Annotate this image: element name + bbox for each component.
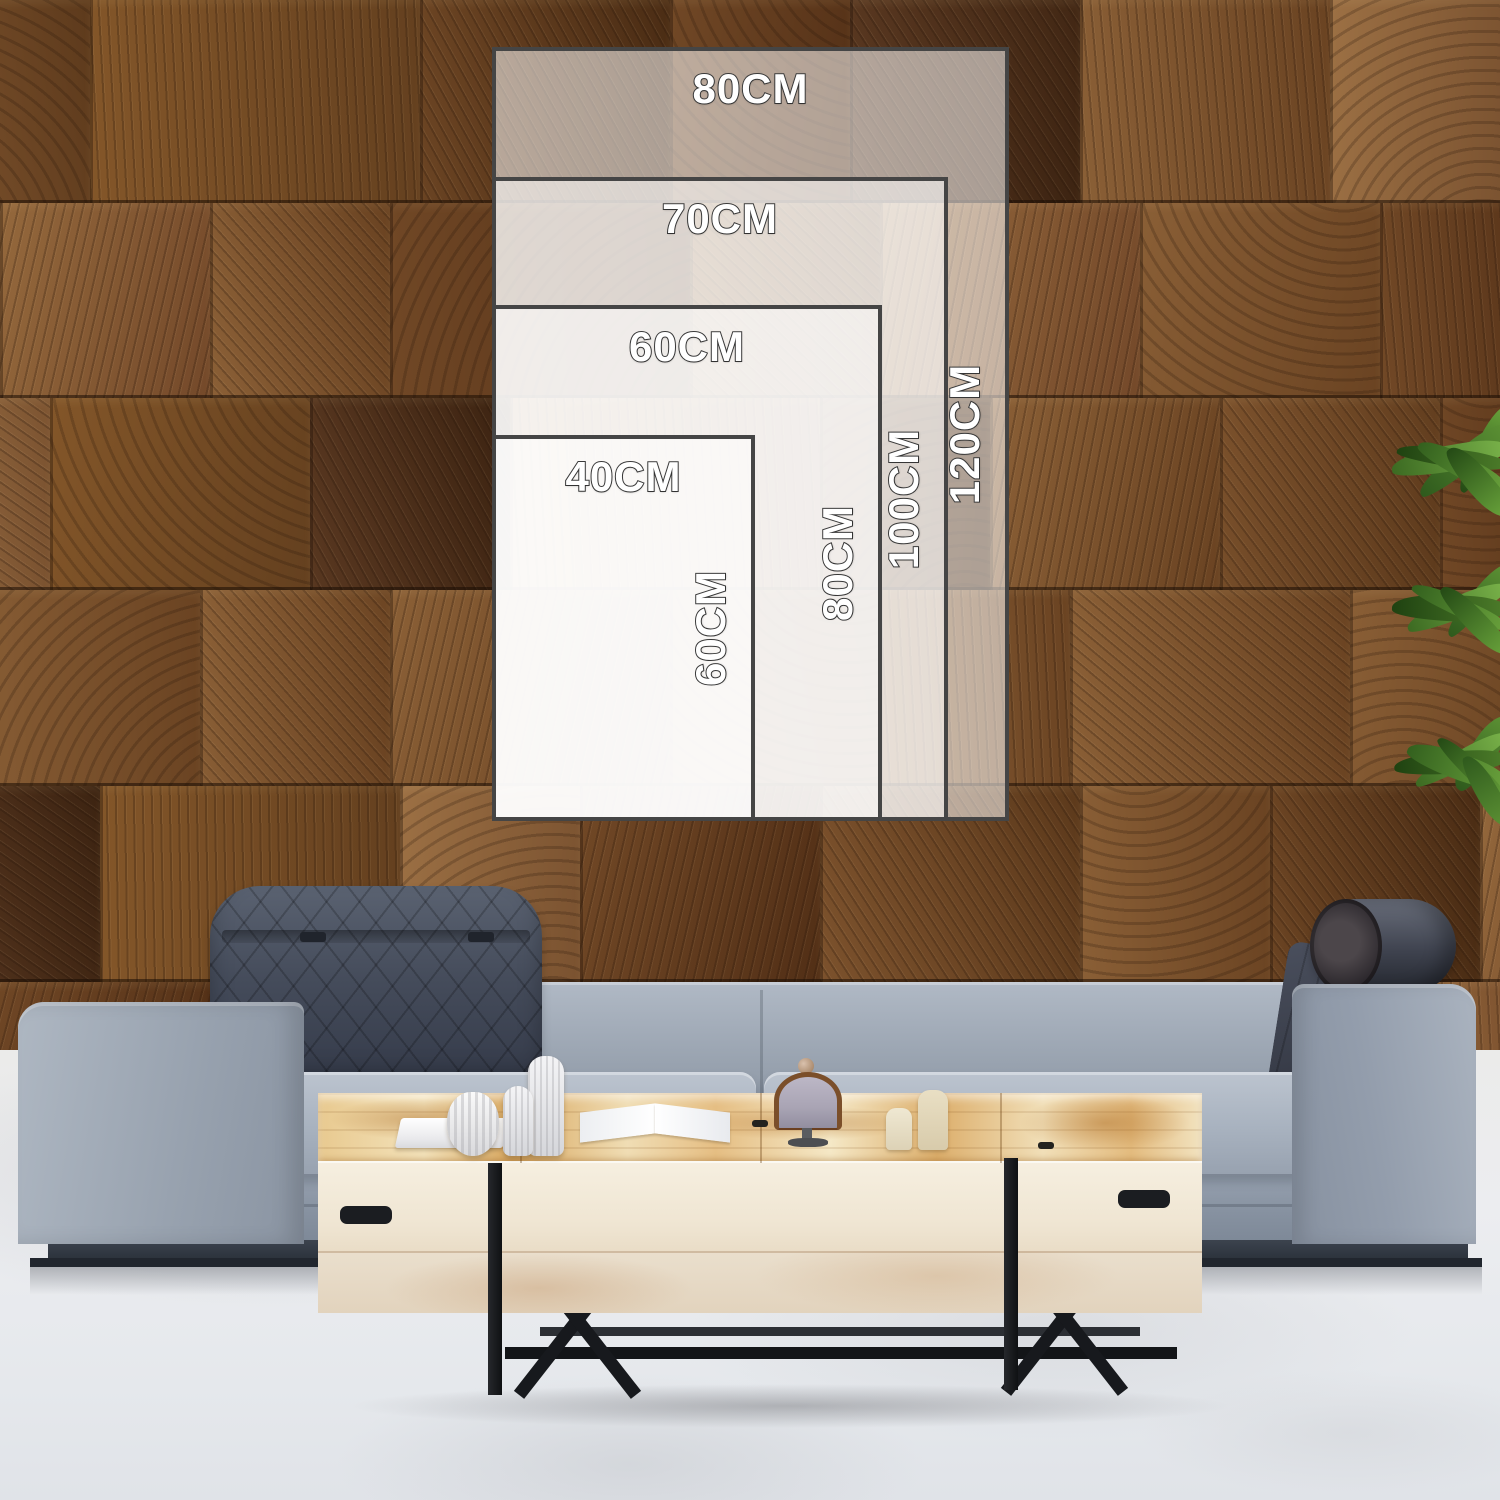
table-plank-seam — [760, 1093, 762, 1163]
plant — [1420, 392, 1500, 862]
wood-block — [0, 786, 100, 982]
wood-block — [1080, 786, 1270, 982]
wood-block — [90, 0, 420, 203]
wood-block — [210, 203, 390, 398]
cloche-dome — [774, 1072, 842, 1130]
wood-block — [1220, 398, 1440, 590]
height-label-wrap-80: 80CM — [802, 309, 874, 817]
size-option-40x60: 40CM 60CM — [492, 435, 755, 821]
wood-block — [990, 398, 1220, 590]
table-front-leg-right — [1004, 1158, 1018, 1390]
table-floor-shadow — [350, 1384, 1230, 1428]
sofa-armrest-left — [18, 1002, 304, 1244]
wood-block — [0, 590, 200, 786]
wood-block — [0, 203, 210, 398]
height-label-120: 120CM — [941, 364, 989, 504]
headrest-clip — [300, 932, 326, 942]
headrest-clip — [468, 932, 494, 942]
table-plank-seam — [1000, 1093, 1002, 1163]
sofa-bolster-endcap — [1310, 899, 1382, 993]
height-label-80: 80CM — [814, 505, 862, 621]
table-front-lower — [318, 1251, 1202, 1313]
cylinder-vase-short — [503, 1086, 533, 1156]
cylinder-vase-tall — [528, 1056, 564, 1156]
table-front-leg-left — [488, 1163, 502, 1395]
wood-block — [200, 590, 390, 786]
wood-block — [0, 398, 50, 590]
wood-block — [0, 0, 90, 203]
wood-block — [1380, 203, 1500, 398]
table-front-face — [318, 1161, 1202, 1253]
wood-block — [1080, 0, 1330, 203]
cloche-foot — [788, 1138, 828, 1147]
table-handle-right — [1118, 1190, 1170, 1208]
height-label-60: 60CM — [687, 570, 735, 686]
gourd-vase — [447, 1092, 499, 1156]
candle-short — [886, 1108, 912, 1150]
wood-block — [1330, 0, 1500, 203]
table-butterfly-clip — [1038, 1142, 1054, 1149]
wood-block — [1070, 590, 1350, 786]
table-butterfly-clip — [752, 1120, 768, 1127]
wood-block — [50, 398, 310, 590]
height-label-wrap-60: 60CM — [675, 439, 747, 817]
candle-tall — [918, 1090, 948, 1150]
wood-block — [310, 398, 510, 590]
height-label-100: 100CM — [880, 429, 928, 569]
size-guide-mockup: 80CM 120CM 70CM 100CM 60CM 80CM 40CM 60C… — [0, 0, 1500, 1500]
sofa-armrest-right — [1292, 984, 1476, 1244]
wood-block — [1140, 203, 1380, 398]
table-handle-left — [340, 1206, 392, 1224]
